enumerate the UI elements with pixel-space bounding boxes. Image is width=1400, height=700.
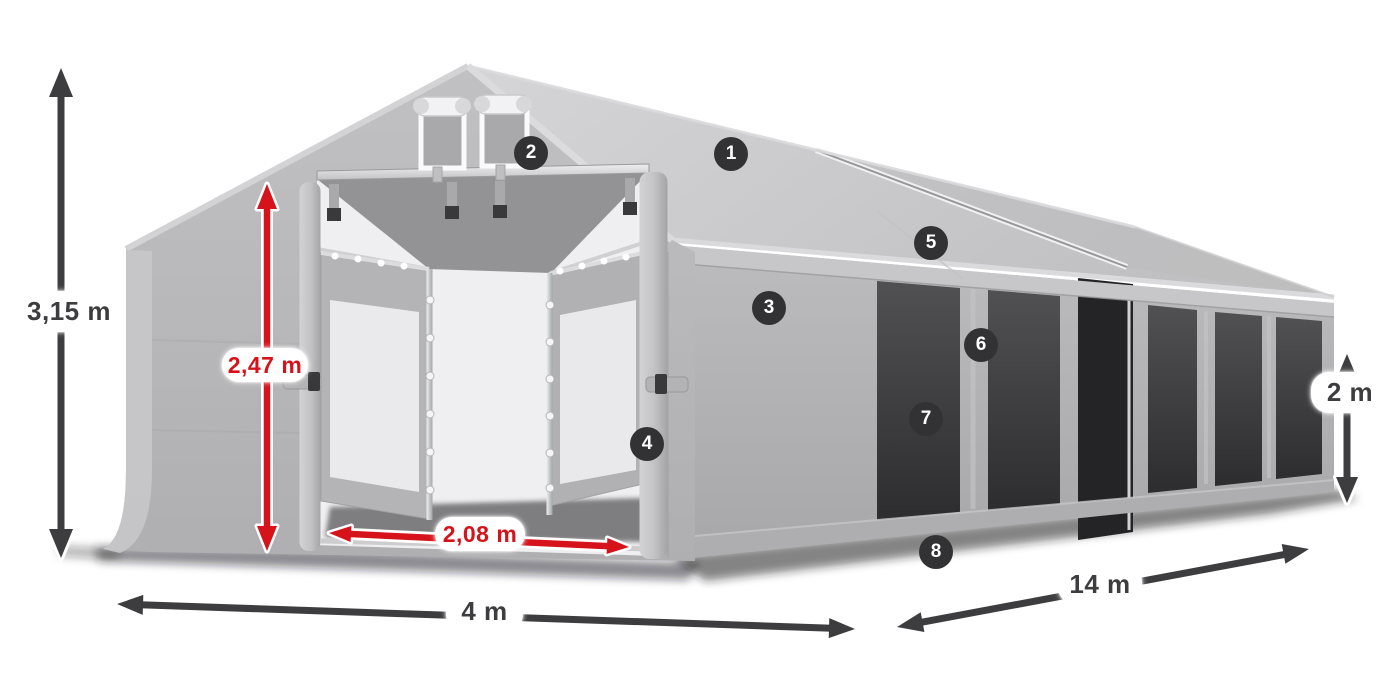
door-clip (557, 268, 564, 275)
latch-clip (308, 372, 320, 391)
door-clip (623, 254, 630, 261)
tent-dimension-diagram: 3,15 m 2,47 m 2,08 m 4 m 14 m 2 m 1 2 3 … (0, 0, 1400, 700)
door-window (330, 300, 419, 492)
dimension-label-length: 14 m (1058, 564, 1142, 605)
door-clip (601, 258, 608, 265)
strap (625, 178, 635, 204)
strap-buckle (623, 202, 637, 215)
pole-clip (426, 296, 434, 304)
pole-clip (546, 449, 554, 457)
dimension-label-total-height: 3,15 m (25, 291, 113, 332)
pole-clip (426, 486, 434, 494)
door-latch-right (646, 374, 688, 394)
pole-clip (546, 484, 554, 492)
feature-badge-6: 6 (964, 328, 998, 362)
pole-clip (546, 301, 554, 309)
door-panel-right (549, 252, 647, 506)
frame-pole (427, 269, 433, 520)
door-clip (332, 253, 339, 260)
dimension-label-entrance-width: 2,08 m (435, 517, 525, 551)
dimension-label-gable-width: 4 m (446, 591, 523, 632)
door-panel-left (321, 253, 429, 520)
pole-clip (426, 372, 434, 380)
pole-clip (426, 410, 434, 418)
tent-illustration (0, 0, 1400, 700)
feature-badge-3: 3 (752, 291, 786, 325)
feature-badge-4: 4 (630, 427, 664, 461)
feature-badge-1: 1 (714, 137, 748, 171)
mesh-window (988, 290, 1060, 512)
strap (329, 184, 339, 210)
pole-clip (546, 412, 554, 420)
door-clip (378, 260, 385, 267)
vent-strap (433, 167, 442, 182)
pole-clip (546, 338, 554, 346)
corner-post-right (640, 172, 668, 559)
dimension-label-sidewall-height: 2 m (1311, 372, 1389, 413)
feature-badge-8: 8 (919, 535, 953, 569)
strap-buckle (493, 205, 507, 218)
latch-clip (655, 374, 667, 394)
door-clip (401, 263, 408, 270)
door-window (560, 300, 636, 484)
vent-roll-cap (516, 96, 532, 112)
door-clip (579, 263, 586, 270)
mesh-window (877, 281, 960, 521)
vent-roll-cap (413, 98, 429, 114)
vent-roll-cap (474, 96, 490, 112)
pole-clip (426, 448, 434, 456)
strap-buckle (327, 208, 341, 221)
dimension-label-entrance-height: 2,47 m (222, 348, 308, 382)
vent-strap (496, 165, 505, 180)
feature-badge-5: 5 (914, 226, 948, 260)
vent-mesh (421, 111, 464, 168)
pole-clip (546, 375, 554, 383)
feature-badge-7: 7 (909, 402, 943, 436)
mesh-window (1215, 312, 1262, 486)
mesh-window (1148, 305, 1197, 493)
strap (447, 182, 457, 208)
pole-clip (426, 334, 434, 342)
vent-roll-cap (455, 98, 471, 114)
strap-buckle (445, 206, 459, 219)
feature-badge-2: 2 (514, 136, 548, 170)
door-clip (355, 256, 362, 263)
strap (495, 181, 505, 207)
